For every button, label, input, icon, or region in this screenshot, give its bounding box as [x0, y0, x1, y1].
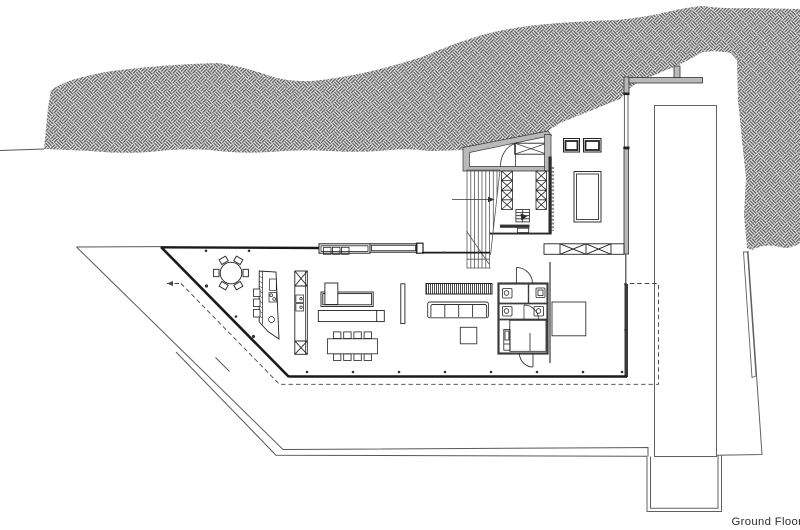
svg-text:Ground Floor: Ground Floor	[732, 516, 800, 528]
